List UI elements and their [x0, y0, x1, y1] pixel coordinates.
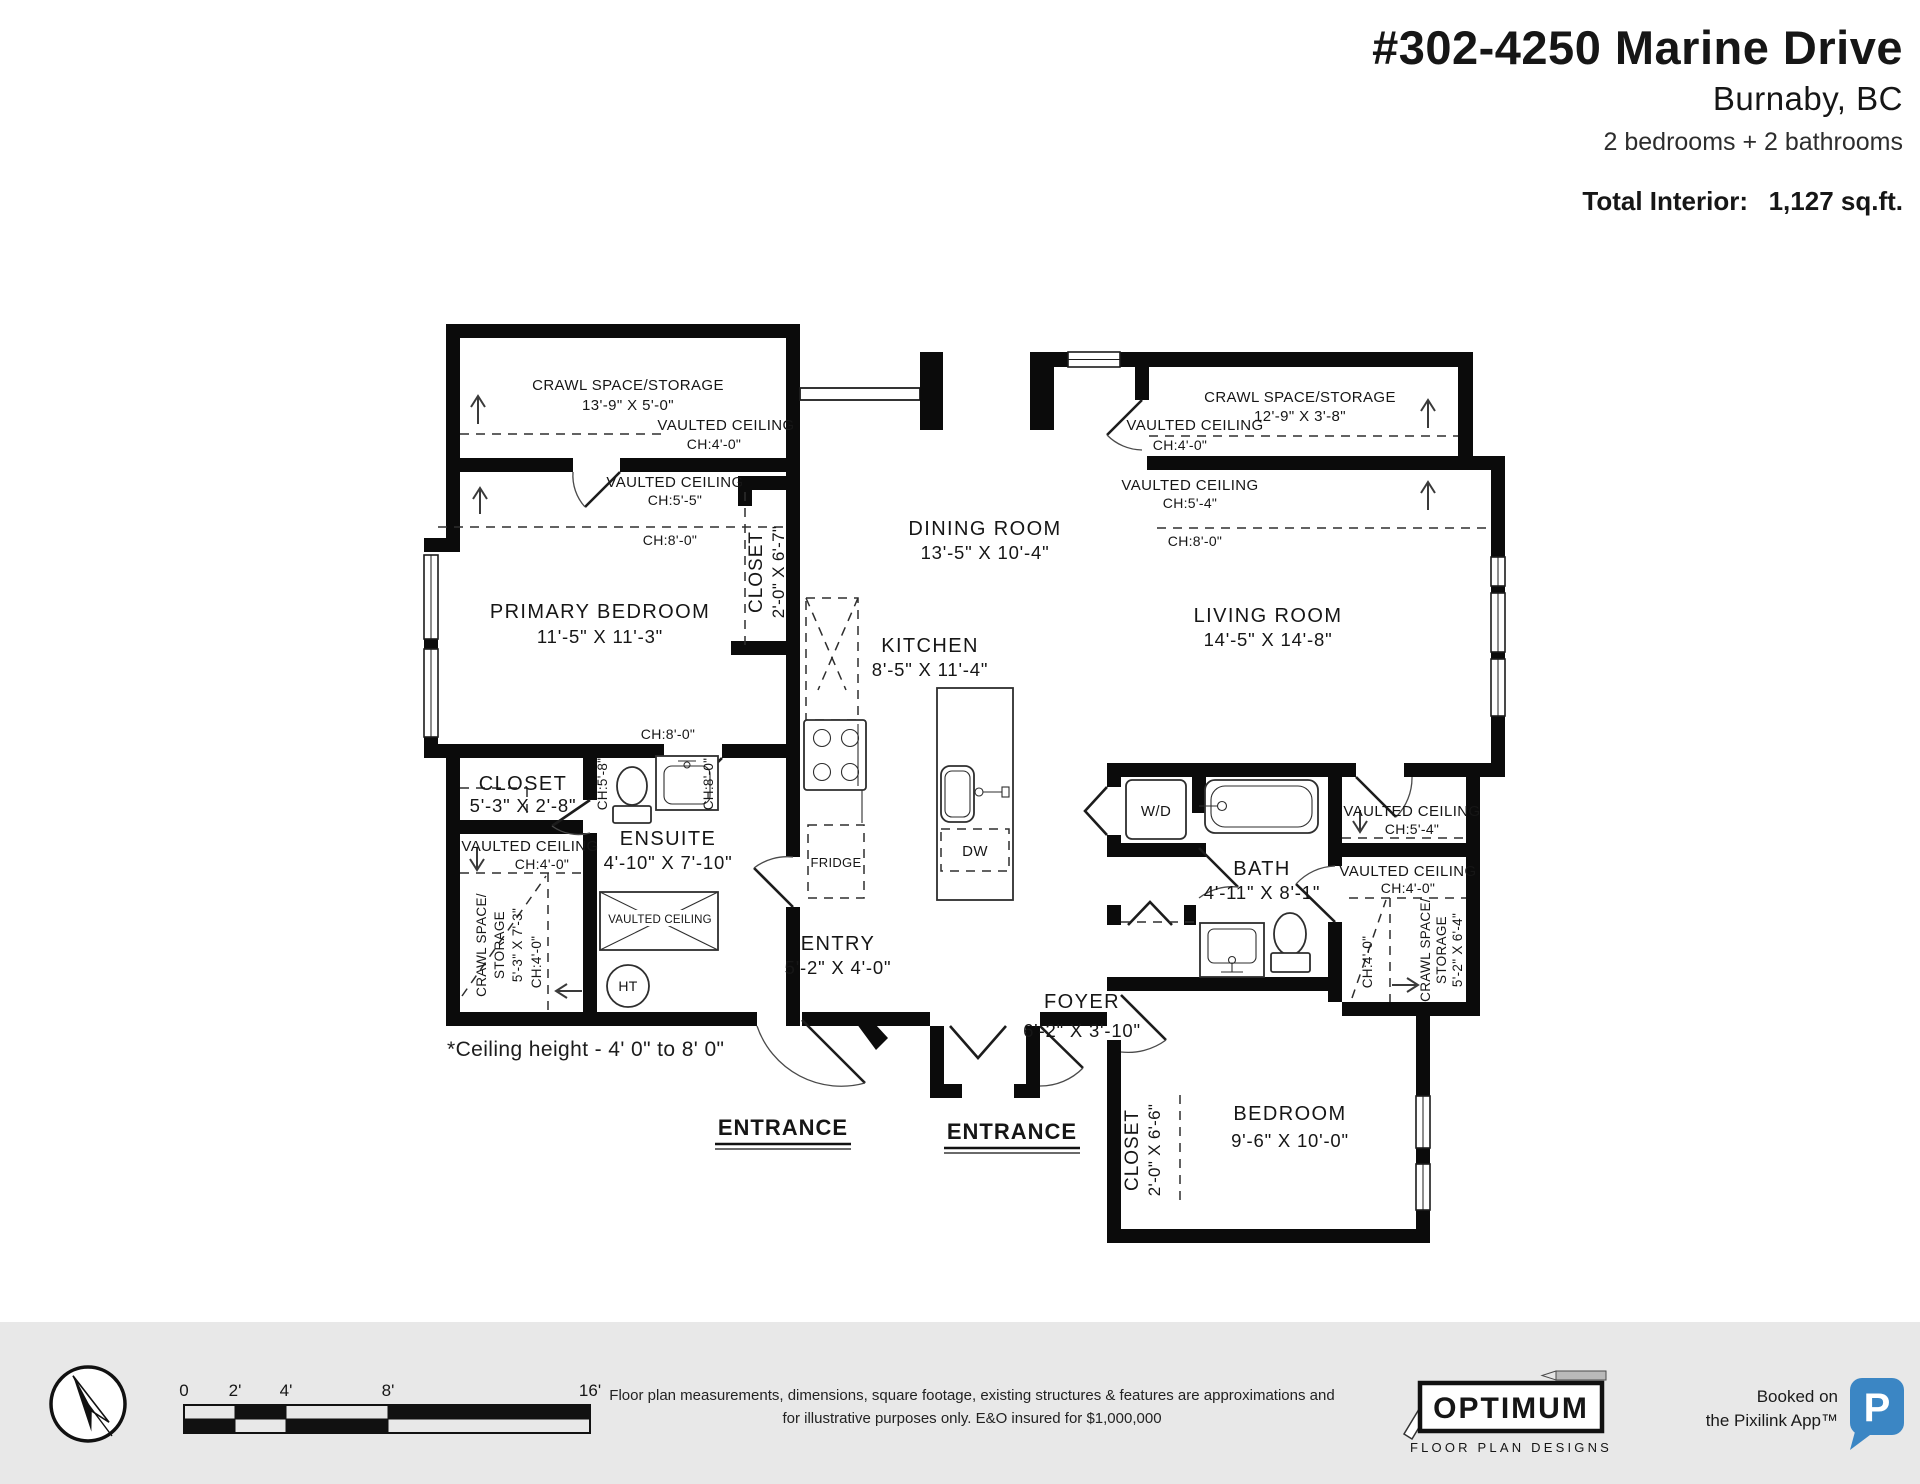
crawl-bl-2: STORAGE	[492, 911, 507, 979]
crawl-tr-name: CRAWL SPACE/STORAGE	[1204, 389, 1396, 406]
living-ch: CH:8'-0"	[1168, 533, 1222, 549]
entry-dims: 5'-2" X 4'-0"	[785, 957, 892, 978]
vaulted-br-lower-2: CH:4'-0"	[1381, 880, 1435, 896]
ceiling-height-note: *Ceiling height - 4' 0" to 8' 0"	[447, 1038, 724, 1061]
fridge-label: FRIDGE	[811, 855, 862, 870]
entry-name: ENTRY	[801, 933, 875, 955]
ensuite-dims: 4'-10" X 7'-10"	[604, 852, 733, 873]
footer: 0 2' 4' 8' 16' Floor plan measurements, …	[0, 1322, 1920, 1484]
living-dims: 14'-5" X 14'-8"	[1204, 629, 1333, 650]
wd-label: W/D	[1141, 803, 1171, 820]
floor-plan-canvas: #302-4250 Marine Drive Burnaby, BC 2 bed…	[0, 0, 1920, 1484]
vaulted-pb-1: VAULTED CEILING	[606, 474, 743, 491]
closet-pb-dims: 5'-3" X 2'-8"	[470, 795, 577, 816]
closet-pb-name: CLOSET	[479, 773, 567, 795]
ensuite-hatch-label: VAULTED CEILING	[608, 914, 712, 926]
kitchen-island	[937, 688, 1013, 900]
vaulted-tr-lower-1: VAULTED CEILING	[1121, 477, 1258, 494]
address-title: #302-4250 Marine Drive	[1372, 21, 1903, 74]
bath-name: BATH	[1233, 858, 1290, 880]
ensuite-ch-left: CH:5'-8"	[595, 758, 610, 811]
crawl-bl-3: 5'-3" X 7'-3"	[510, 908, 525, 982]
toilet-tank	[613, 806, 651, 823]
toilet-bowl	[617, 767, 647, 805]
booked-line2: the Pixilink App™	[1706, 1411, 1838, 1430]
brand-name: OPTIMUM	[1433, 1392, 1589, 1425]
closet-hall-dims: 2'-0" X 6'-7"	[769, 526, 788, 618]
stove	[804, 720, 866, 790]
scale-8: 8'	[382, 1381, 395, 1400]
app-letter: P	[1864, 1386, 1891, 1430]
foyer-dims: 6'-2" X 3'-10"	[1023, 1020, 1141, 1041]
bath-toilet-tank	[1271, 953, 1310, 972]
scale-0: 0	[179, 1381, 188, 1400]
dining-name: DINING ROOM	[908, 518, 1061, 540]
vaulted-tr-lower-2: CH:5'-4"	[1163, 495, 1217, 511]
bedroom-dims: 9'-6" X 10'-0"	[1231, 1130, 1349, 1151]
kitchen-name: KITCHEN	[881, 635, 979, 657]
vaulted-br-lower-1: VAULTED CEILING	[1339, 863, 1476, 880]
bath-toilet-bowl	[1274, 913, 1306, 955]
primary-bedroom-dims: 11'-5" X 11'-3"	[537, 626, 663, 647]
foyer-name: FOYER	[1044, 991, 1120, 1013]
crawl-tl-name: CRAWL SPACE/STORAGE	[532, 377, 724, 394]
scale-2: 2'	[229, 1381, 242, 1400]
pencil-top-icon	[1556, 1371, 1606, 1380]
vaulted-tl-2: CH:4'-0"	[687, 436, 741, 452]
compass-icon	[51, 1367, 125, 1441]
vaulted-tl-1: VAULTED CEILING	[657, 417, 794, 434]
vaulted-tr-upper-2: CH:4'-0"	[1153, 437, 1207, 453]
bedroom-name: BEDROOM	[1233, 1103, 1346, 1125]
pb-ch-lower: CH:8'-0"	[641, 726, 695, 742]
crawl-bl-1: CRAWL SPACE/	[474, 893, 489, 997]
kitchen-dims: 8'-5" X 11'-4"	[872, 659, 988, 680]
header: #302-4250 Marine Drive Burnaby, BC 2 bed…	[1372, 21, 1903, 216]
ensuite-name: ENSUITE	[620, 828, 716, 850]
brand-tagline: FLOOR PLAN DESIGNS	[1410, 1440, 1612, 1455]
disclaimer-line1: Floor plan measurements, dimensions, squ…	[609, 1387, 1334, 1404]
disclaimer-line2: for illustrative purposes only. E&O insu…	[782, 1410, 1161, 1427]
scale-4: 4'	[280, 1381, 293, 1400]
closet-br-name: CLOSET	[1122, 1109, 1143, 1191]
bath-dims: 4'-11" X 8'-1"	[1204, 882, 1320, 903]
pb-ch-upper: CH:8'-0"	[643, 532, 697, 548]
vaulted-br-upper-2: CH:5'-4"	[1385, 821, 1439, 837]
address-city: Burnaby, BC	[1713, 80, 1903, 117]
ht-label: HT	[618, 978, 637, 994]
dining-dims: 13'-5" X 10'-4"	[921, 542, 1050, 563]
crawl-br-ch: CH:4'-0"	[1360, 936, 1375, 989]
bath-vanity	[1200, 923, 1264, 977]
crawl-bl-vc2: CH:4'-0"	[515, 856, 569, 872]
vaulted-tr-upper-1: VAULTED CEILING	[1126, 417, 1263, 434]
ensuite-ch-right: CH:8'-0"	[701, 758, 716, 811]
total-interior-value: 1,127 sq.ft.	[1769, 186, 1903, 216]
entrance-labels: ENTRANCE ENTRANCE *Ceiling height - 4' 0…	[447, 1038, 1080, 1153]
entrance-left-label: ENTRANCE	[718, 1115, 848, 1140]
crawl-tl-dims: 13'-9" X 5'-0"	[582, 397, 674, 414]
crawl-bl-vc1: VAULTED CEILING	[461, 838, 598, 855]
floor-plan-page: #302-4250 Marine Drive Burnaby, BC 2 bed…	[0, 0, 1920, 1484]
dw-label: DW	[962, 843, 988, 860]
crawl-br-2: STORAGE	[1434, 916, 1449, 984]
crawl-br-3: 5'-2" X 6'-4"	[1450, 913, 1465, 987]
crawl-bl-ch: CH:4'-0"	[529, 936, 544, 989]
closet-br-dims: 2'-0" X 6'-6"	[1145, 1104, 1164, 1196]
crawl-br-1: CRAWL SPACE/	[1418, 898, 1433, 1002]
scale-16: 16'	[579, 1381, 601, 1400]
booked-line1: Booked on	[1757, 1387, 1838, 1406]
total-interior-label: Total Interior:	[1582, 186, 1748, 216]
entrance-right-label: ENTRANCE	[947, 1119, 1077, 1144]
closet-hall-name: CLOSET	[746, 531, 767, 613]
living-name: LIVING ROOM	[1194, 605, 1343, 627]
primary-bedroom-name: PRIMARY BEDROOM	[490, 601, 710, 623]
vaulted-br-upper-1: VAULTED CEILING	[1343, 803, 1480, 820]
crawl-tr-dims: 12'-9" X 3'-8"	[1254, 408, 1346, 425]
rooms-summary: 2 bedrooms + 2 bathrooms	[1604, 128, 1903, 156]
vaulted-pb-2: CH:5'-5"	[648, 492, 702, 508]
bathtub	[1199, 780, 1318, 833]
optimum-logo: OPTIMUM FLOOR PLAN DESIGNS	[1404, 1371, 1612, 1455]
